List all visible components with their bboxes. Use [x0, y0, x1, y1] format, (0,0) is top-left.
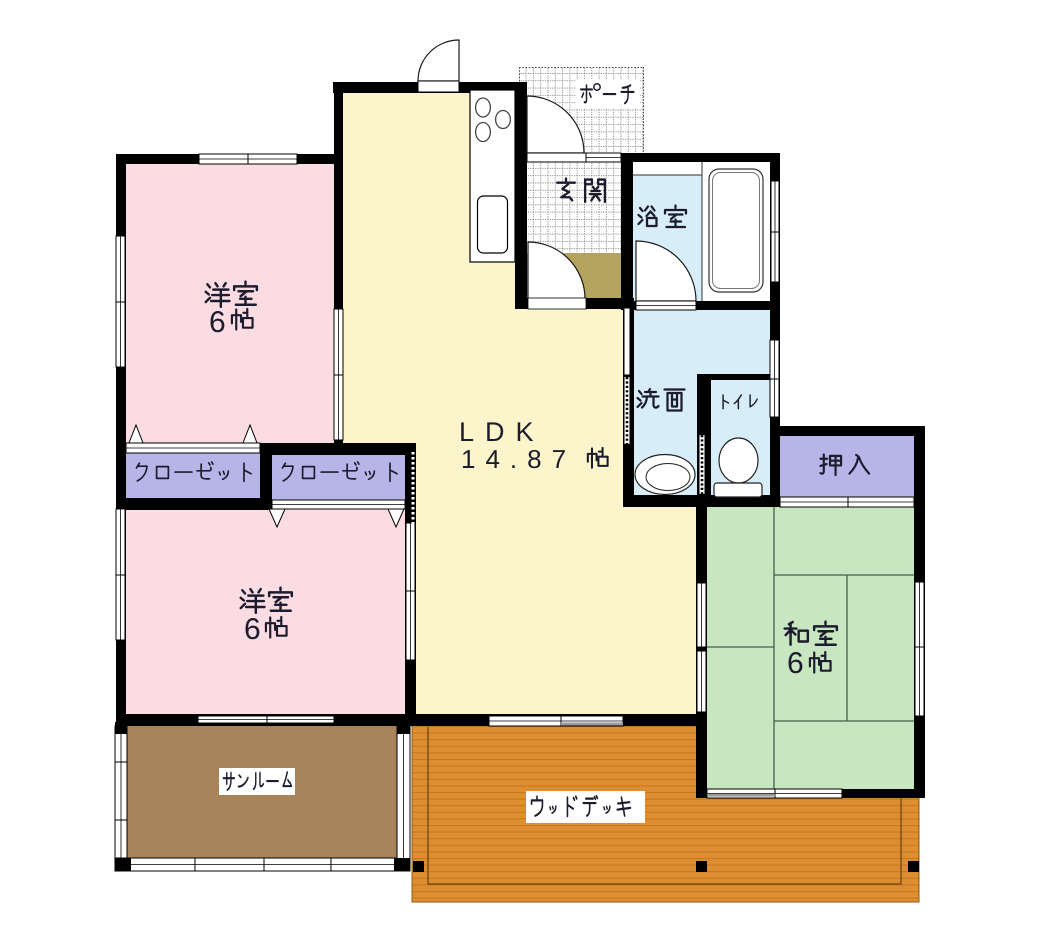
svg-text:6: 6	[209, 306, 226, 339]
svg-text:6: 6	[787, 647, 804, 680]
svg-text:LDK: LDK	[459, 417, 545, 447]
svg-text:14.87: 14.87	[461, 444, 576, 474]
svg-text:6: 6	[244, 613, 261, 646]
